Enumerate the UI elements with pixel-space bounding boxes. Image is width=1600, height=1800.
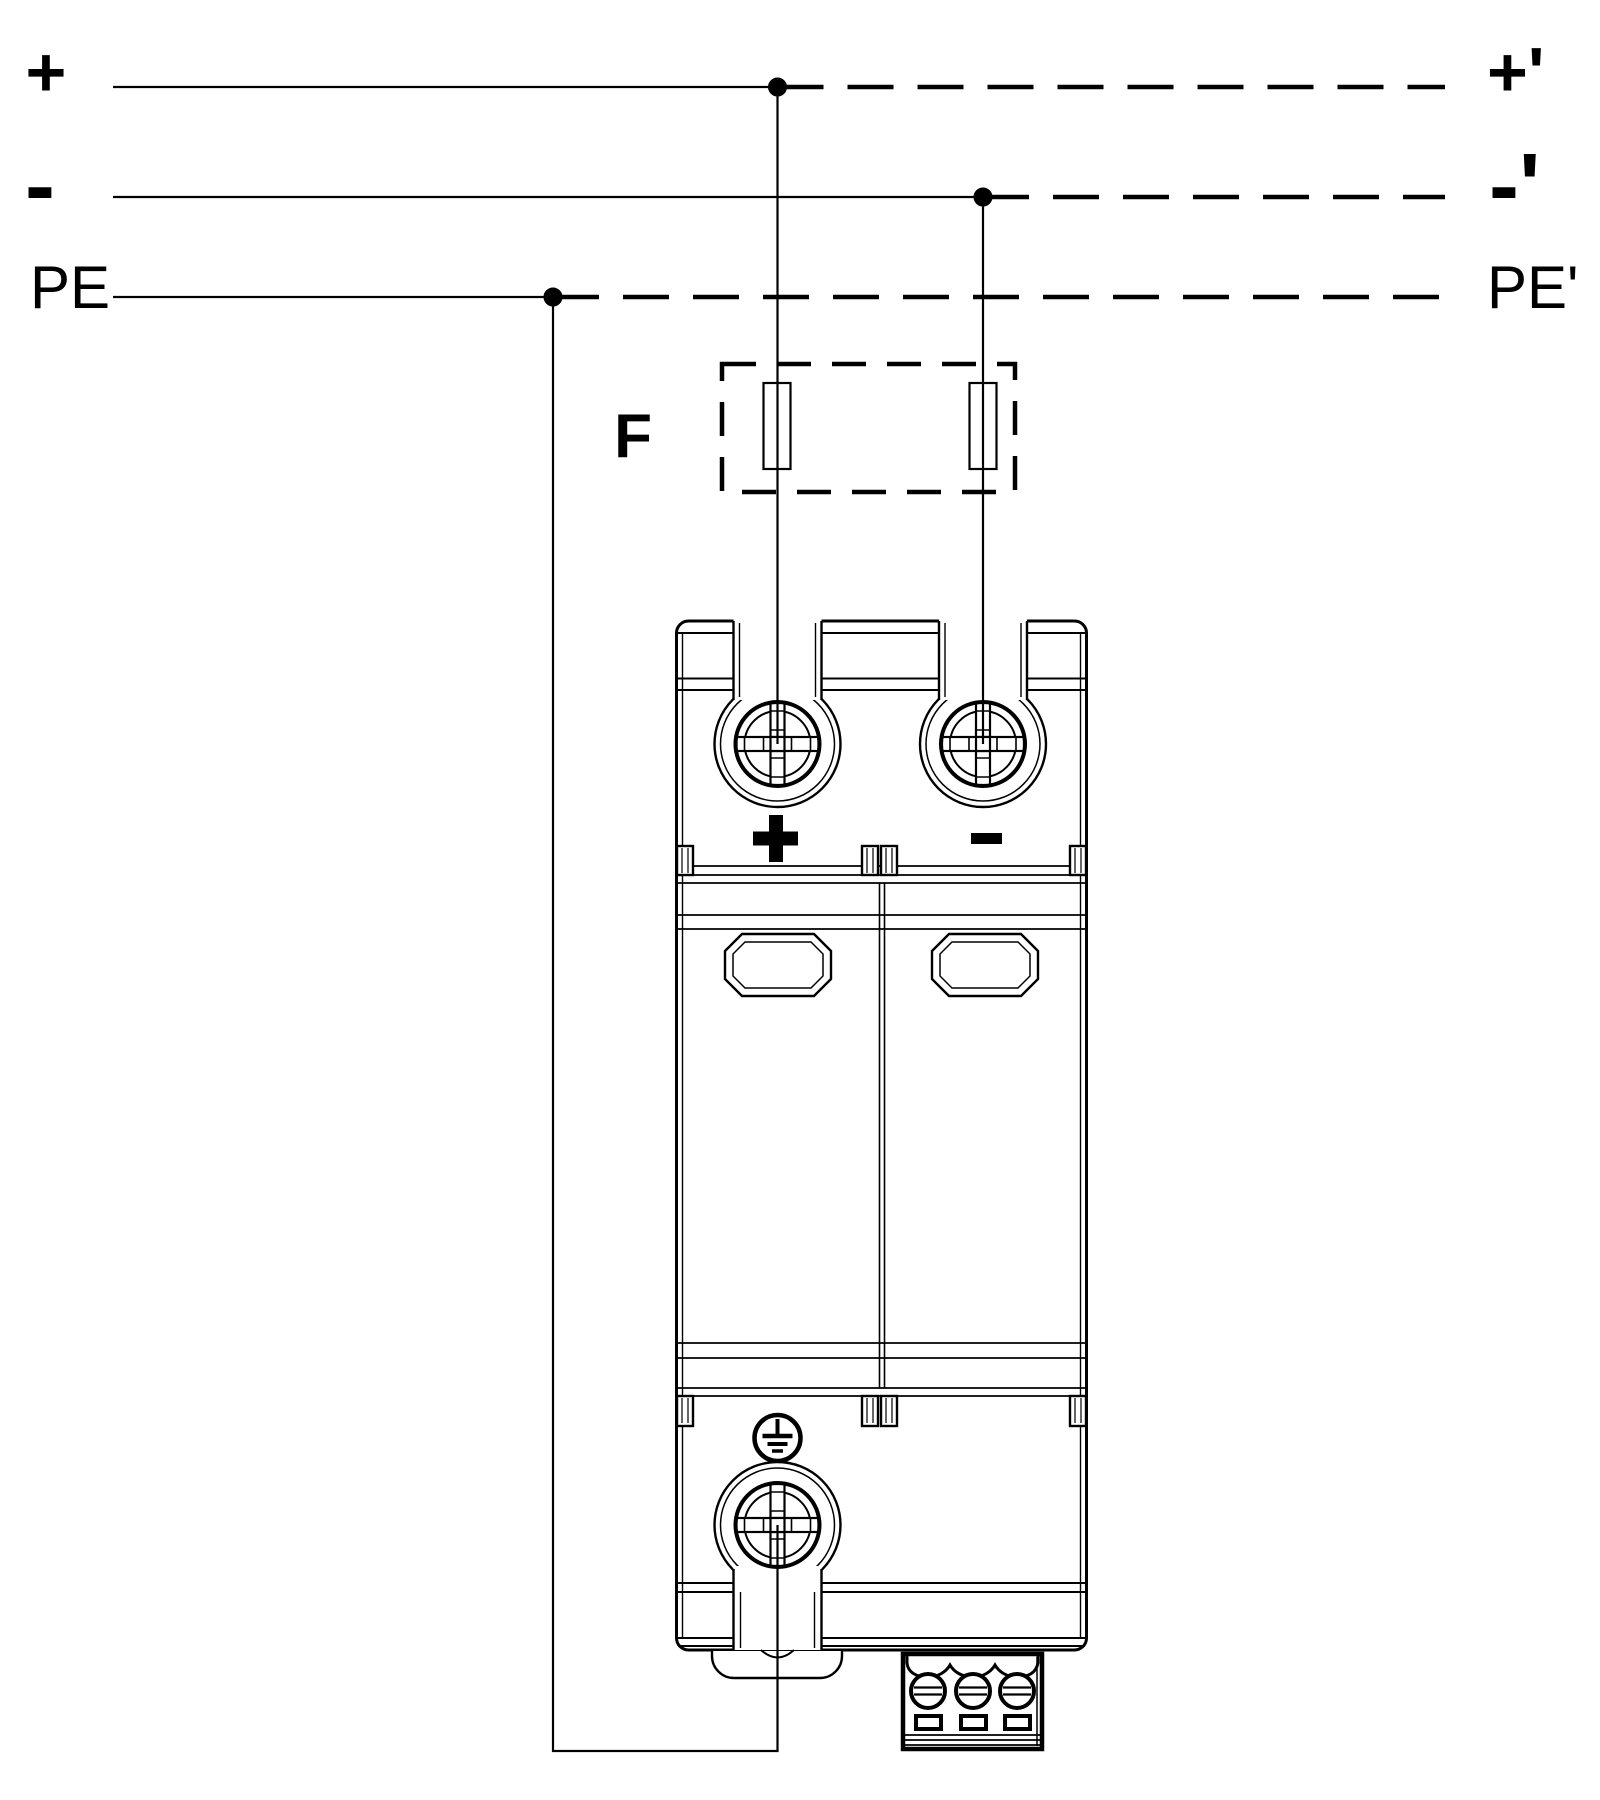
block-screw-3: [1000, 1674, 1034, 1708]
earth-symbol: [755, 1415, 801, 1461]
label-fuse: F: [614, 402, 652, 471]
label-plus-in: +: [26, 33, 67, 111]
signal-terminal-block: [903, 1654, 1042, 1749]
spd-device: [677, 619, 1087, 1650]
label-minus-out: -': [1489, 136, 1540, 236]
label-pe-in: PE: [30, 254, 110, 321]
block-screw-1: [911, 1674, 945, 1708]
wiring-diagram: + - PE +' -' PE' F: [0, 0, 1600, 1800]
label-minus-in: -: [25, 136, 55, 236]
label-pe-out: PE': [1487, 254, 1579, 321]
block-screw-2: [956, 1674, 990, 1708]
indicator-window-left: [725, 934, 831, 996]
diagram-canvas: + - PE +' -' PE' F: [0, 0, 1600, 1800]
indicator-window-right: [932, 934, 1038, 996]
device-marking-negative: [971, 833, 1002, 844]
block-wire-entry-2: [961, 1716, 986, 1729]
label-plus-out: +': [1487, 33, 1545, 111]
block-wire-entry-3: [1005, 1716, 1030, 1729]
block-wire-entry-1: [916, 1716, 941, 1729]
fuse-box: [722, 364, 1015, 492]
